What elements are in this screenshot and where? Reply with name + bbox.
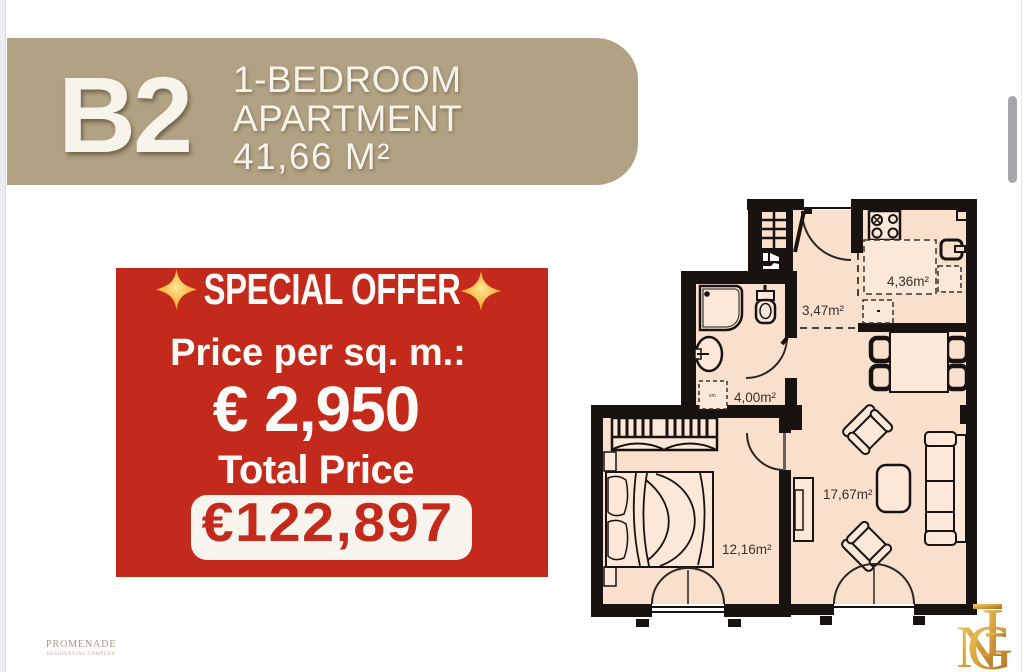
svg-text:vm: vm — [709, 393, 716, 399]
svg-text:17,67m²: 17,67m² — [823, 487, 873, 502]
svg-text:3,47m²: 3,47m² — [802, 303, 845, 318]
svg-text:4,00m²: 4,00m² — [734, 390, 777, 405]
svg-text:12,16m²: 12,16m² — [722, 542, 772, 557]
svg-text:4,36m²: 4,36m² — [887, 274, 930, 289]
